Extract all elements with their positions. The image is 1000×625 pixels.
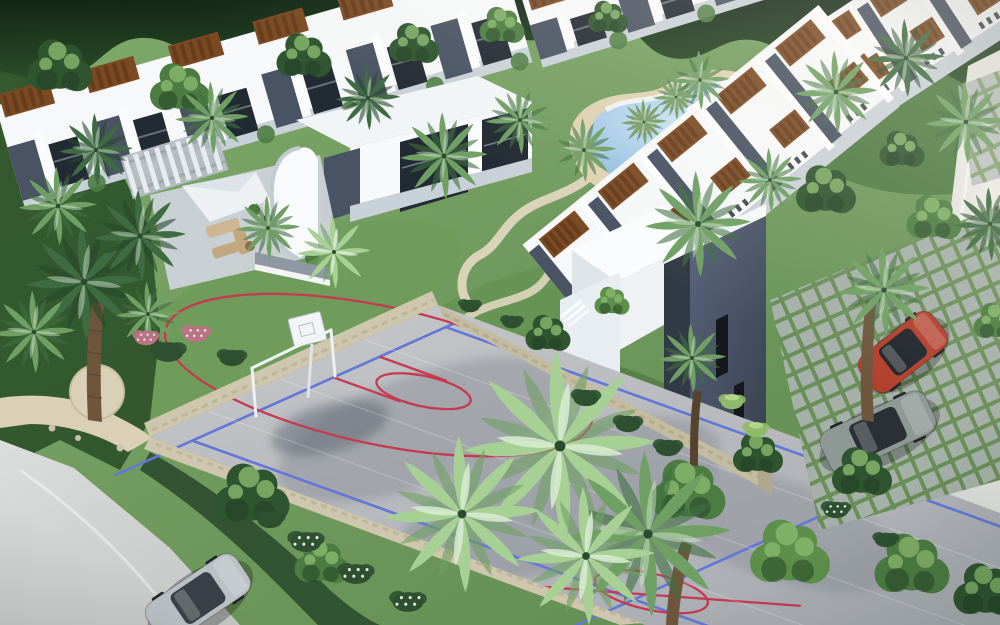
vignette-overlay bbox=[0, 0, 1000, 625]
aerial-render-scene bbox=[0, 0, 1000, 625]
scene-canvas bbox=[0, 0, 1000, 625]
